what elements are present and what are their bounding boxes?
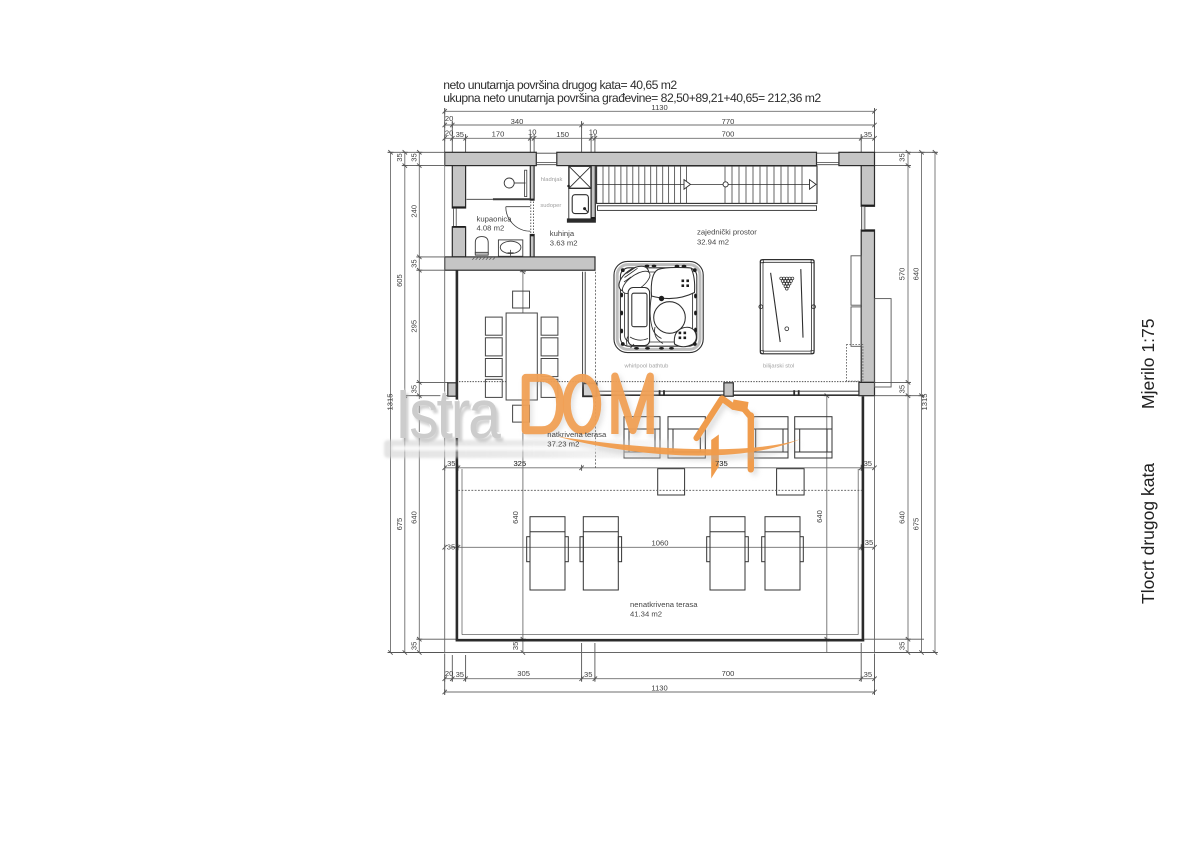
svg-text:35: 35: [447, 542, 455, 551]
svg-text:1315: 1315: [920, 394, 929, 411]
svg-text:Istra: Istra: [395, 374, 501, 453]
svg-text:3.63 m2: 3.63 m2: [550, 239, 578, 248]
svg-text:sudoper: sudoper: [540, 203, 561, 209]
svg-text:35: 35: [409, 259, 418, 267]
svg-text:295: 295: [409, 320, 418, 333]
svg-text:150: 150: [556, 130, 569, 139]
svg-text:170: 170: [492, 130, 505, 139]
svg-text:kupaonica: kupaonica: [477, 215, 513, 224]
svg-text:675: 675: [395, 518, 404, 531]
svg-text:35: 35: [898, 153, 907, 161]
svg-text:37.23 m2: 37.23 m2: [547, 440, 579, 449]
svg-text:340: 340: [511, 117, 524, 126]
svg-text:20: 20: [445, 669, 453, 678]
svg-text:Mjerilo 1:75: Mjerilo 1:75: [1138, 319, 1158, 409]
svg-text:35: 35: [864, 459, 872, 468]
svg-text:20: 20: [445, 114, 453, 123]
svg-text:ukupna neto unutarnja površina: ukupna neto unutarnja površina građevine…: [443, 91, 821, 105]
svg-text:neto unutarnja površina drugog: neto unutarnja površina drugog kata= 40,…: [443, 78, 677, 92]
svg-text:35: 35: [898, 642, 907, 650]
svg-text:zajednički prostor: zajednički prostor: [697, 228, 757, 237]
svg-text:35: 35: [456, 130, 464, 139]
svg-text:32.94 m2: 32.94 m2: [697, 237, 729, 246]
svg-text:1130: 1130: [651, 683, 667, 692]
svg-text:640: 640: [898, 511, 907, 524]
svg-text:nenatkrivena terasa: nenatkrivena terasa: [630, 600, 698, 609]
svg-text:whirlpool bathtub: whirlpool bathtub: [624, 363, 669, 369]
svg-text:700: 700: [722, 669, 735, 678]
svg-text:natkrivena terasa: natkrivena terasa: [547, 430, 607, 439]
svg-text:35: 35: [584, 670, 592, 679]
svg-text:1130: 1130: [651, 103, 667, 112]
svg-text:hladnjak: hladnjak: [541, 177, 563, 183]
svg-text:20: 20: [445, 129, 453, 138]
svg-text:35: 35: [865, 538, 873, 547]
svg-text:10: 10: [528, 128, 536, 137]
svg-text:kuhinja: kuhinja: [550, 229, 575, 238]
svg-text:700: 700: [722, 130, 735, 139]
svg-text:35: 35: [447, 459, 455, 468]
svg-text:605: 605: [395, 274, 404, 287]
svg-text:640: 640: [815, 510, 824, 523]
svg-text:240: 240: [409, 205, 418, 218]
svg-text:675: 675: [912, 518, 921, 531]
svg-text:10: 10: [589, 128, 597, 137]
svg-text:4.08 m2: 4.08 m2: [477, 224, 505, 233]
svg-text:640: 640: [912, 268, 921, 281]
svg-text:35: 35: [898, 385, 907, 393]
svg-text:640: 640: [511, 511, 520, 524]
svg-text:640: 640: [409, 511, 418, 524]
svg-text:35: 35: [864, 130, 872, 139]
svg-text:1060: 1060: [652, 539, 669, 548]
svg-text:35: 35: [864, 670, 872, 679]
svg-text:735: 735: [715, 459, 728, 468]
svg-text:770: 770: [722, 117, 735, 126]
svg-text:35: 35: [409, 153, 418, 161]
svg-text:35: 35: [511, 642, 520, 650]
svg-text:305: 305: [517, 669, 530, 678]
svg-text:bilijarski stol: bilijarski stol: [763, 363, 794, 369]
svg-text:325: 325: [513, 459, 526, 468]
svg-text:Tlocrt drugog kata: Tlocrt drugog kata: [1138, 463, 1158, 604]
svg-text:35: 35: [409, 642, 418, 650]
svg-text:35: 35: [456, 670, 464, 679]
svg-text:41.34 m2: 41.34 m2: [630, 610, 662, 619]
svg-text:35: 35: [395, 153, 404, 161]
svg-text:570: 570: [898, 268, 907, 281]
